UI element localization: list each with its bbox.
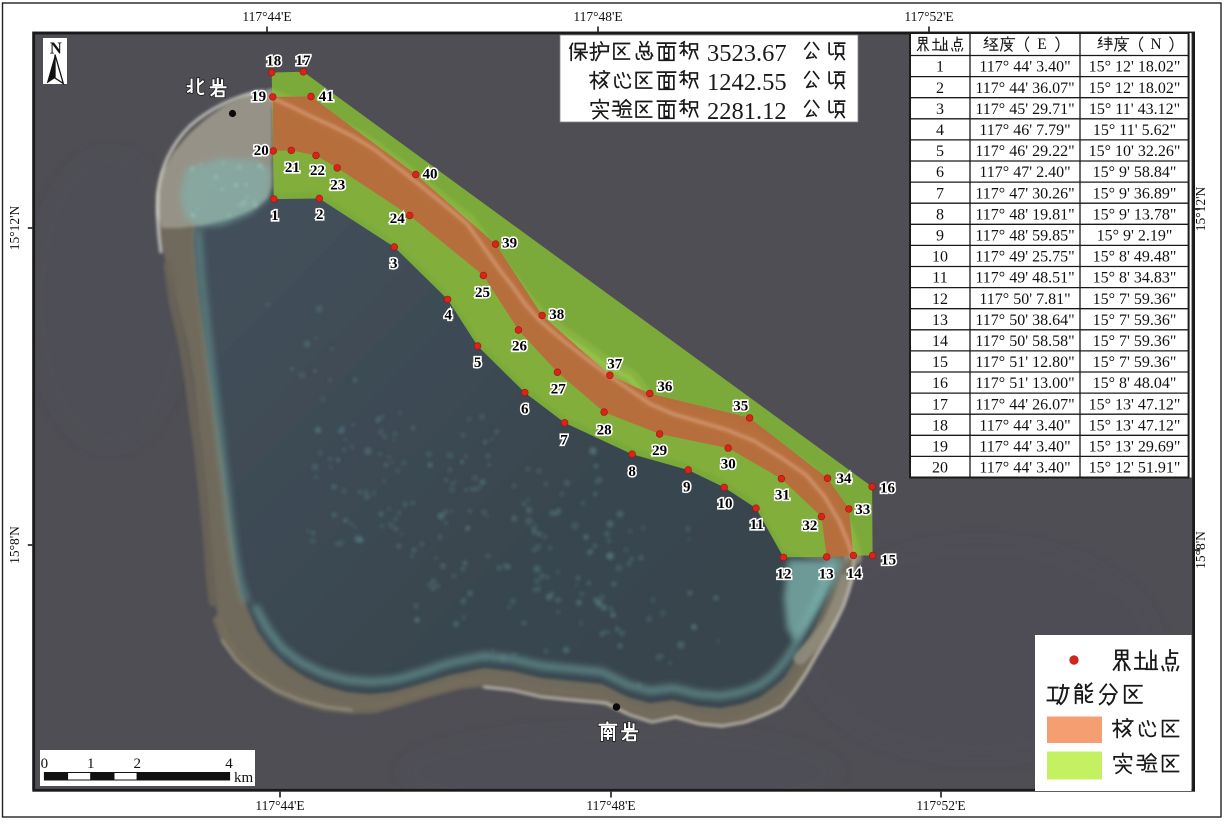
svg-text:N: N <box>50 39 62 58</box>
svg-text:32: 32 <box>802 518 817 534</box>
svg-text:117°52'E: 117°52'E <box>904 9 953 24</box>
svg-text:7: 7 <box>936 185 944 202</box>
svg-text:117° 44' 3.40": 117° 44' 3.40" <box>979 460 1070 477</box>
svg-text:117° 50' 38.64": 117° 50' 38.64" <box>975 312 1074 329</box>
svg-text:2281.12: 2281.12 <box>707 98 787 125</box>
svg-text:15°12'N: 15°12'N <box>7 205 22 250</box>
svg-text:8: 8 <box>936 206 944 223</box>
svg-text:117°44'E: 117°44'E <box>242 9 291 24</box>
svg-text:117° 45' 29.71": 117° 45' 29.71" <box>975 101 1074 118</box>
svg-text:23: 23 <box>330 177 345 193</box>
svg-text:117° 50' 58.58": 117° 50' 58.58" <box>975 333 1074 350</box>
svg-text:117° 47' 30.26": 117° 47' 30.26" <box>975 185 1074 202</box>
svg-text:9: 9 <box>683 479 691 495</box>
svg-text:1: 1 <box>271 208 279 224</box>
svg-text:3: 3 <box>390 256 398 272</box>
svg-text:27: 27 <box>551 381 567 397</box>
svg-text:117° 46' 29.22": 117° 46' 29.22" <box>975 143 1074 160</box>
svg-text:15° 12' 18.02": 15° 12' 18.02" <box>1089 80 1181 97</box>
svg-text:15° 8' 48.04": 15° 8' 48.04" <box>1093 375 1177 392</box>
svg-text:34: 34 <box>837 471 853 487</box>
svg-text:16: 16 <box>932 375 948 392</box>
svg-text:4: 4 <box>936 122 944 139</box>
svg-text:18: 18 <box>266 54 281 70</box>
svg-text:117° 44' 3.40": 117° 44' 3.40" <box>979 59 1070 76</box>
svg-text:117° 48' 19.81": 117° 48' 19.81" <box>975 206 1074 223</box>
svg-text:2: 2 <box>936 80 944 97</box>
svg-text:19: 19 <box>251 89 266 105</box>
svg-text:33: 33 <box>855 502 870 518</box>
svg-text:15° 7' 59.36": 15° 7' 59.36" <box>1093 312 1177 329</box>
svg-text:26: 26 <box>512 338 528 354</box>
svg-text:13: 13 <box>932 312 948 329</box>
svg-text:117° 51' 12.80": 117° 51' 12.80" <box>975 354 1074 371</box>
svg-text:6: 6 <box>936 164 944 181</box>
svg-text:5: 5 <box>474 355 482 371</box>
svg-text:117° 49' 48.51": 117° 49' 48.51" <box>975 270 1074 287</box>
svg-text:15° 9' 58.84": 15° 9' 58.84" <box>1093 164 1177 181</box>
svg-text:9: 9 <box>936 228 944 245</box>
svg-text:5: 5 <box>936 143 944 160</box>
svg-text:15° 11' 5.62": 15° 11' 5.62" <box>1093 122 1176 139</box>
svg-text:20: 20 <box>932 460 948 477</box>
svg-text:3523.67: 3523.67 <box>707 40 787 67</box>
svg-text:1: 1 <box>87 756 95 772</box>
svg-text:15°8'N: 15°8'N <box>7 526 22 564</box>
svg-text:4: 4 <box>225 756 233 772</box>
svg-text:15° 7' 59.36": 15° 7' 59.36" <box>1093 354 1177 371</box>
svg-text:14: 14 <box>847 566 863 582</box>
svg-text:1: 1 <box>936 59 944 76</box>
svg-text:15° 13' 29.69": 15° 13' 29.69" <box>1089 439 1181 456</box>
svg-text:36: 36 <box>657 379 673 395</box>
svg-text:10: 10 <box>718 496 733 512</box>
svg-text:25: 25 <box>475 285 490 301</box>
svg-text:37: 37 <box>607 357 623 373</box>
svg-text:15°8'N: 15°8'N <box>1193 531 1208 569</box>
svg-text:117°52'E: 117°52'E <box>916 798 965 813</box>
svg-text:14: 14 <box>932 333 948 350</box>
svg-text:117° 44' 26.07": 117° 44' 26.07" <box>975 396 1074 413</box>
svg-text:0: 0 <box>41 756 49 772</box>
svg-text:2: 2 <box>316 207 324 223</box>
svg-text:15° 7' 59.36": 15° 7' 59.36" <box>1093 333 1177 350</box>
svg-text:11: 11 <box>932 270 947 287</box>
svg-text:2: 2 <box>133 756 141 772</box>
svg-text:1242.55: 1242.55 <box>707 69 787 96</box>
svg-text:15° 8' 34.83": 15° 8' 34.83" <box>1093 270 1177 287</box>
svg-text:117° 49' 25.75": 117° 49' 25.75" <box>975 249 1074 266</box>
svg-text:15° 11' 43.12": 15° 11' 43.12" <box>1089 101 1180 118</box>
svg-text:21: 21 <box>285 160 300 176</box>
svg-text:7: 7 <box>560 432 568 448</box>
svg-text:15° 13' 47.12": 15° 13' 47.12" <box>1089 417 1181 434</box>
svg-text:29: 29 <box>652 443 667 459</box>
svg-text:24: 24 <box>390 211 406 227</box>
svg-text:22: 22 <box>310 163 325 179</box>
svg-text:12: 12 <box>932 291 948 308</box>
svg-text:117° 44' 3.40": 117° 44' 3.40" <box>979 439 1070 456</box>
svg-text:19: 19 <box>932 439 948 456</box>
svg-text:40: 40 <box>423 166 438 182</box>
svg-text:15° 7' 59.36": 15° 7' 59.36" <box>1093 291 1177 308</box>
svg-text:16: 16 <box>880 481 896 497</box>
svg-text:28: 28 <box>597 422 612 438</box>
svg-text:20: 20 <box>254 143 269 159</box>
svg-text:15: 15 <box>881 553 896 569</box>
svg-text:117° 44' 3.40": 117° 44' 3.40" <box>979 417 1070 434</box>
svg-text:38: 38 <box>549 307 564 323</box>
svg-text:17: 17 <box>296 53 312 69</box>
svg-text:18: 18 <box>932 417 948 434</box>
svg-text:15: 15 <box>932 354 948 371</box>
svg-text:35: 35 <box>733 398 748 414</box>
svg-text:3: 3 <box>936 101 944 118</box>
svg-text:4: 4 <box>444 308 452 324</box>
svg-text:15° 8' 49.48": 15° 8' 49.48" <box>1093 249 1177 266</box>
svg-text:15° 9' 2.19": 15° 9' 2.19" <box>1097 228 1173 245</box>
svg-text:13: 13 <box>819 566 834 582</box>
svg-text:117° 50' 7.81": 117° 50' 7.81" <box>979 291 1070 308</box>
svg-text:15° 9' 13.78": 15° 9' 13.78" <box>1093 206 1177 223</box>
svg-text:31: 31 <box>775 487 790 503</box>
svg-text:117°48'E: 117°48'E <box>573 9 622 24</box>
svg-text:30: 30 <box>721 456 736 472</box>
svg-text:15° 10' 32.26": 15° 10' 32.26" <box>1089 143 1181 160</box>
svg-text:117° 44' 36.07": 117° 44' 36.07" <box>975 80 1074 97</box>
svg-text:11: 11 <box>750 517 764 533</box>
svg-text:41: 41 <box>319 89 334 105</box>
svg-text:8: 8 <box>628 464 636 480</box>
svg-text:km: km <box>234 770 254 786</box>
svg-text:39: 39 <box>502 236 517 252</box>
svg-text:15° 9' 36.89": 15° 9' 36.89" <box>1093 185 1177 202</box>
svg-text:10: 10 <box>932 249 948 266</box>
svg-text:117°48'E: 117°48'E <box>586 798 635 813</box>
svg-text:N: N <box>1150 36 1161 53</box>
svg-text:117° 48' 59.85": 117° 48' 59.85" <box>975 228 1074 245</box>
svg-text:12: 12 <box>777 566 792 582</box>
svg-text:117° 46' 7.79": 117° 46' 7.79" <box>979 122 1070 139</box>
svg-text:117°44'E: 117°44'E <box>255 798 304 813</box>
svg-text:117° 47' 2.40": 117° 47' 2.40" <box>979 164 1070 181</box>
svg-text:6: 6 <box>521 402 529 418</box>
svg-text:15° 13' 47.12": 15° 13' 47.12" <box>1089 396 1181 413</box>
svg-text:117° 51' 13.00": 117° 51' 13.00" <box>975 375 1074 392</box>
svg-text:15° 12' 51.91": 15° 12' 51.91" <box>1089 460 1181 477</box>
svg-text:15° 12' 18.02": 15° 12' 18.02" <box>1089 59 1181 76</box>
svg-text:E: E <box>1037 36 1046 53</box>
svg-text:17: 17 <box>932 396 948 413</box>
svg-text:15°12'N: 15°12'N <box>1193 186 1208 231</box>
